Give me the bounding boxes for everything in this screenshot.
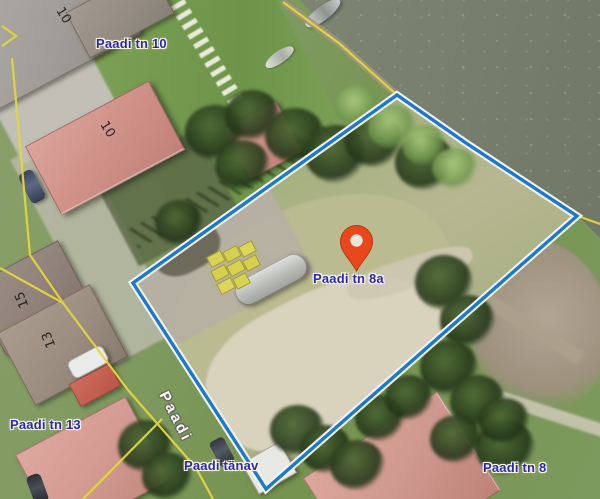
- address-label-tanav: Paadi tänav: [184, 458, 258, 473]
- address-label-tn13: Paadi tn 13: [10, 417, 81, 432]
- address-label-tn8a: Paadi tn 8a: [313, 271, 384, 286]
- tree-canopy: [155, 200, 203, 245]
- address-label-tn10: Paadi tn 10: [96, 36, 167, 51]
- hedge-bush: [330, 440, 385, 490]
- address-label-tn8: Paadi tn 8: [483, 460, 546, 475]
- tree-canopy: [430, 415, 482, 463]
- aerial-map-canvas[interactable]: Paadi tn 10 Paadi tn 8a Paadi tn 13 Paad…: [0, 0, 600, 499]
- location-pin-hole: [350, 234, 362, 246]
- garden-mound-bush: [478, 398, 530, 443]
- shore-bush: [432, 148, 478, 188]
- tree-canopy: [215, 140, 270, 190]
- hedge-bush: [385, 375, 433, 420]
